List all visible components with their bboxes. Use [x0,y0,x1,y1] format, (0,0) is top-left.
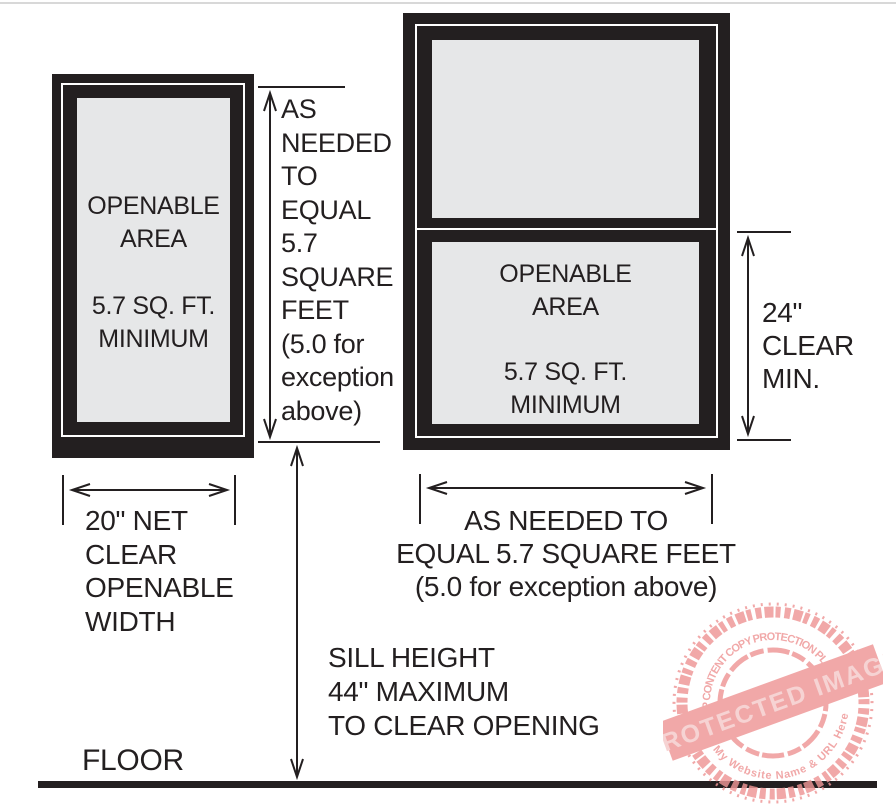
protected-image-watermark: WP CONTENT COPY PROTECTION PLUGIN My Web… [663,593,883,812]
egress-window-diagram: OPENABLE AREA 5.7 SQ. FT. MINIMUM OPENAB… [0,0,896,812]
